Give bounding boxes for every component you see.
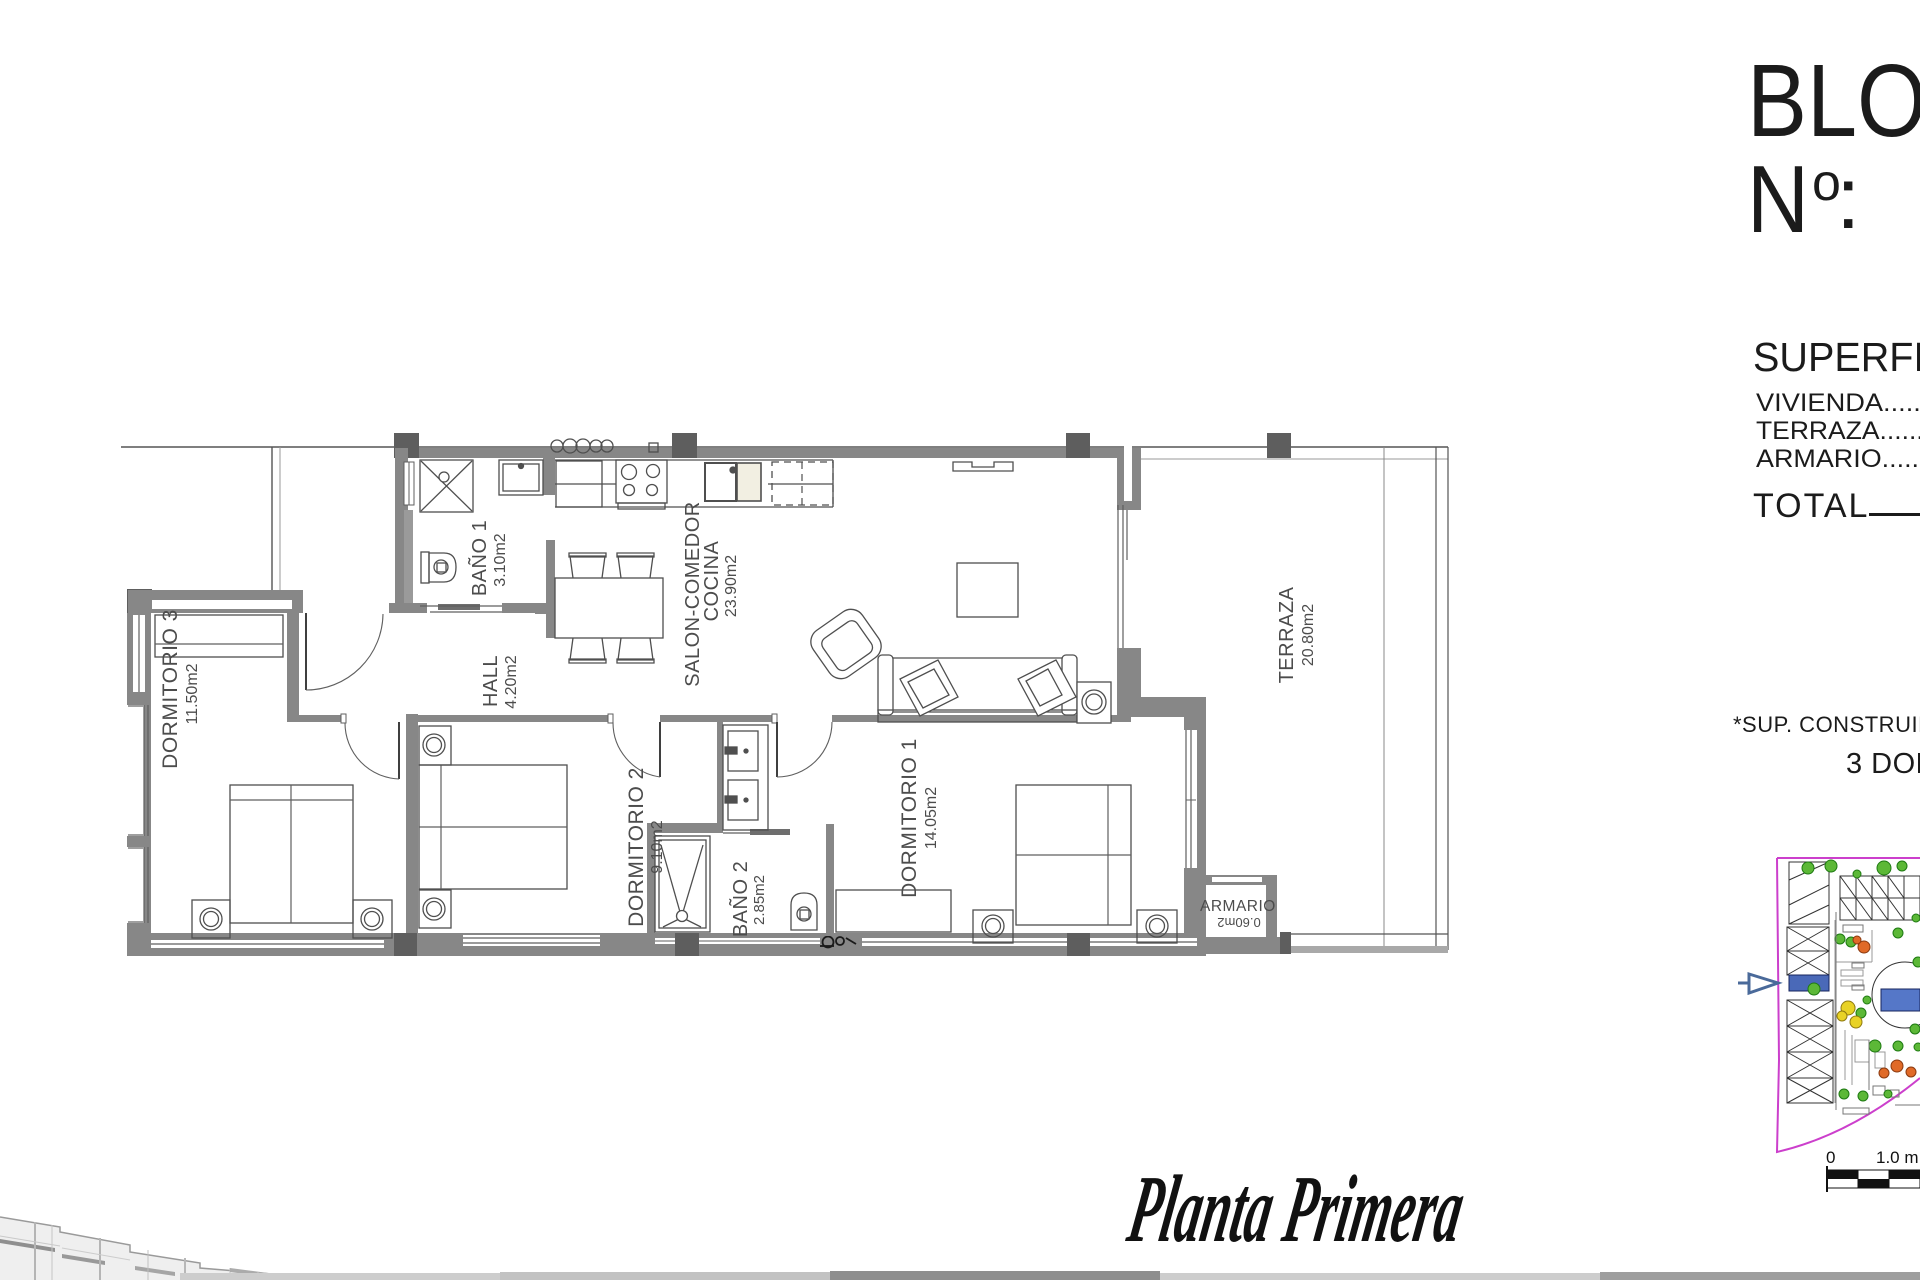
- svg-text:0.60m2: 0.60m2: [1217, 915, 1260, 930]
- svg-text:DORMITORIO 3: DORMITORIO 3: [159, 609, 182, 769]
- svg-text:TOTAL: TOTAL: [1753, 487, 1869, 525]
- svg-text:ARMARIO: ARMARIO: [1200, 898, 1276, 915]
- svg-text::: :: [1836, 148, 1860, 247]
- svg-text:TERRAZA: TERRAZA: [1276, 586, 1298, 683]
- svg-text:2.85m2: 2.85m2: [751, 875, 768, 925]
- svg-text:23.90m2: 23.90m2: [723, 555, 740, 617]
- svg-text:*SUP. CONSTRUIDA: *SUP. CONSTRUIDA: [1733, 712, 1920, 737]
- svg-text:VIVIENDA.......: VIVIENDA.......: [1756, 389, 1920, 417]
- svg-text:DORMITORIO 1: DORMITORIO 1: [898, 738, 921, 898]
- svg-text:ARMARIO.......: ARMARIO.......: [1756, 445, 1920, 473]
- svg-text:BLOQ: BLOQ: [1747, 43, 1920, 158]
- svg-text:BAÑO 1: BAÑO 1: [467, 520, 491, 596]
- svg-text:9.10m2: 9.10m2: [649, 820, 666, 873]
- svg-text:HALL: HALL: [480, 655, 502, 707]
- svg-text:1.0 m: 1.0 m: [1876, 1148, 1919, 1167]
- svg-text:SUPERFIC: SUPERFIC: [1753, 334, 1920, 380]
- svg-text:20.80m2: 20.80m2: [1300, 604, 1317, 666]
- svg-text:Planta Primera: Planta Primera: [1121, 1156, 1472, 1262]
- svg-text:TERRAZA.......: TERRAZA.......: [1756, 417, 1920, 445]
- svg-text:4.20m2: 4.20m2: [503, 655, 520, 708]
- svg-text:BAÑO 2: BAÑO 2: [728, 861, 752, 937]
- svg-text:0: 0: [1826, 1148, 1835, 1167]
- svg-text:14.05m2: 14.05m2: [923, 787, 940, 849]
- svg-text:DORMITORIO 2: DORMITORIO 2: [625, 767, 648, 927]
- svg-text:COCINA: COCINA: [701, 540, 723, 621]
- svg-text:11.50m2: 11.50m2: [184, 663, 201, 724]
- svg-text:N: N: [1747, 146, 1809, 253]
- svg-text:3.10m2: 3.10m2: [492, 533, 509, 586]
- svg-text:3 DOR: 3 DOR: [1846, 748, 1920, 780]
